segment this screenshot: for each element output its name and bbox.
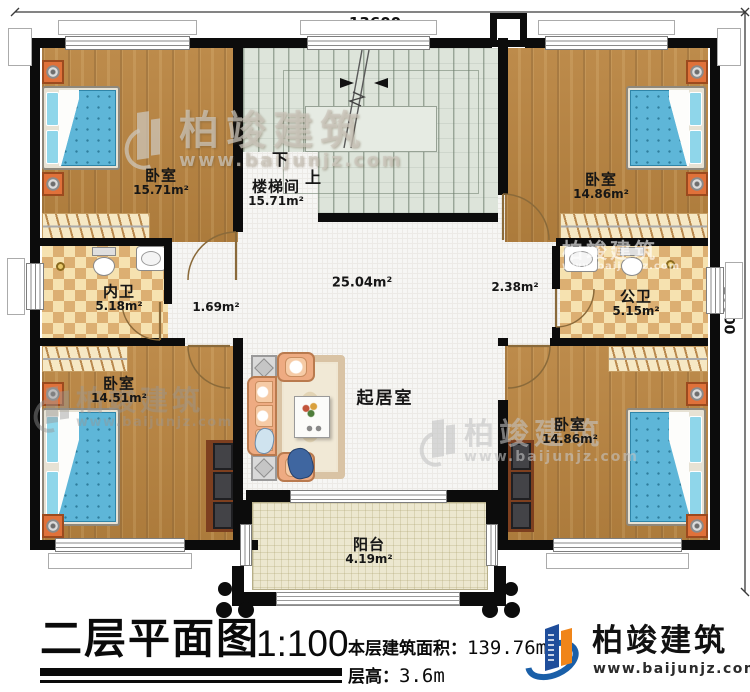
room-label-balcony: 阳台 [353,538,385,553]
title-underline-thin [40,680,342,683]
room-label-bedroom-tr: 卧室 [585,173,617,188]
logo-building-orange [561,628,572,666]
floor-height-value: 3.6m [399,665,445,687]
room-area-stairwell: 15.71m² [248,195,304,207]
stair-down-label: 下 [272,152,288,168]
room-label-public-bath: 公卫 [620,290,652,305]
room-area-balcony: 4.19m² [345,553,392,565]
room-area-hall-left: 1.69m² [192,301,239,313]
stair-direction-arrow [374,78,388,88]
door-arc [188,346,230,388]
room-label-stairwell: 楼梯间 [252,180,300,195]
brand-company: 柏竣建筑 [592,626,728,657]
door-arc [188,232,236,280]
title-underline [40,668,342,676]
room-area-inner-bath: 5.18m² [95,300,142,312]
door-arc [556,289,594,327]
drawing-scale: 1:100 [256,625,349,662]
room-area-living: 25.04m² [332,277,392,290]
drawing-title: 二层平面图 [40,618,260,660]
room-area-bedroom-tr: 14.86m² [573,188,629,200]
floor-height-row: 层高：3.6m [348,662,445,687]
floor-height-label: 层高： [348,667,399,687]
room-area-bedroom-bl: 14.51m² [91,392,147,404]
room-area-hall-right: 2.38m² [491,281,538,293]
floor-area-label: 本层建筑面积： [348,639,467,659]
room-label-bedroom-tl: 卧室 [145,169,177,184]
room-area-bedroom-br: 14.86m² [542,433,598,445]
linework-layer [0,0,750,692]
logo-building-blue [545,624,559,671]
stair-up-label: 上 [305,170,321,186]
floor-plan-page: 13600 10800 [0,0,750,692]
stair-break-line [340,50,388,148]
stair-direction-arrow [340,78,354,88]
room-label-bedroom-bl: 卧室 [103,377,135,392]
door-arc [503,194,549,240]
room-label-inner-bath: 内卫 [103,285,135,300]
door-arc [508,346,550,388]
room-label-living: 起居室 [357,391,414,408]
room-label-bedroom-br: 卧室 [554,418,586,433]
balcony-finials [216,582,520,618]
room-area-public-bath: 5.15m² [612,305,659,317]
brand-website: www.baijunjz.com [593,662,750,676]
room-area-bedroom-tl: 15.71m² [133,184,189,196]
brand-logo-icon [524,620,586,686]
